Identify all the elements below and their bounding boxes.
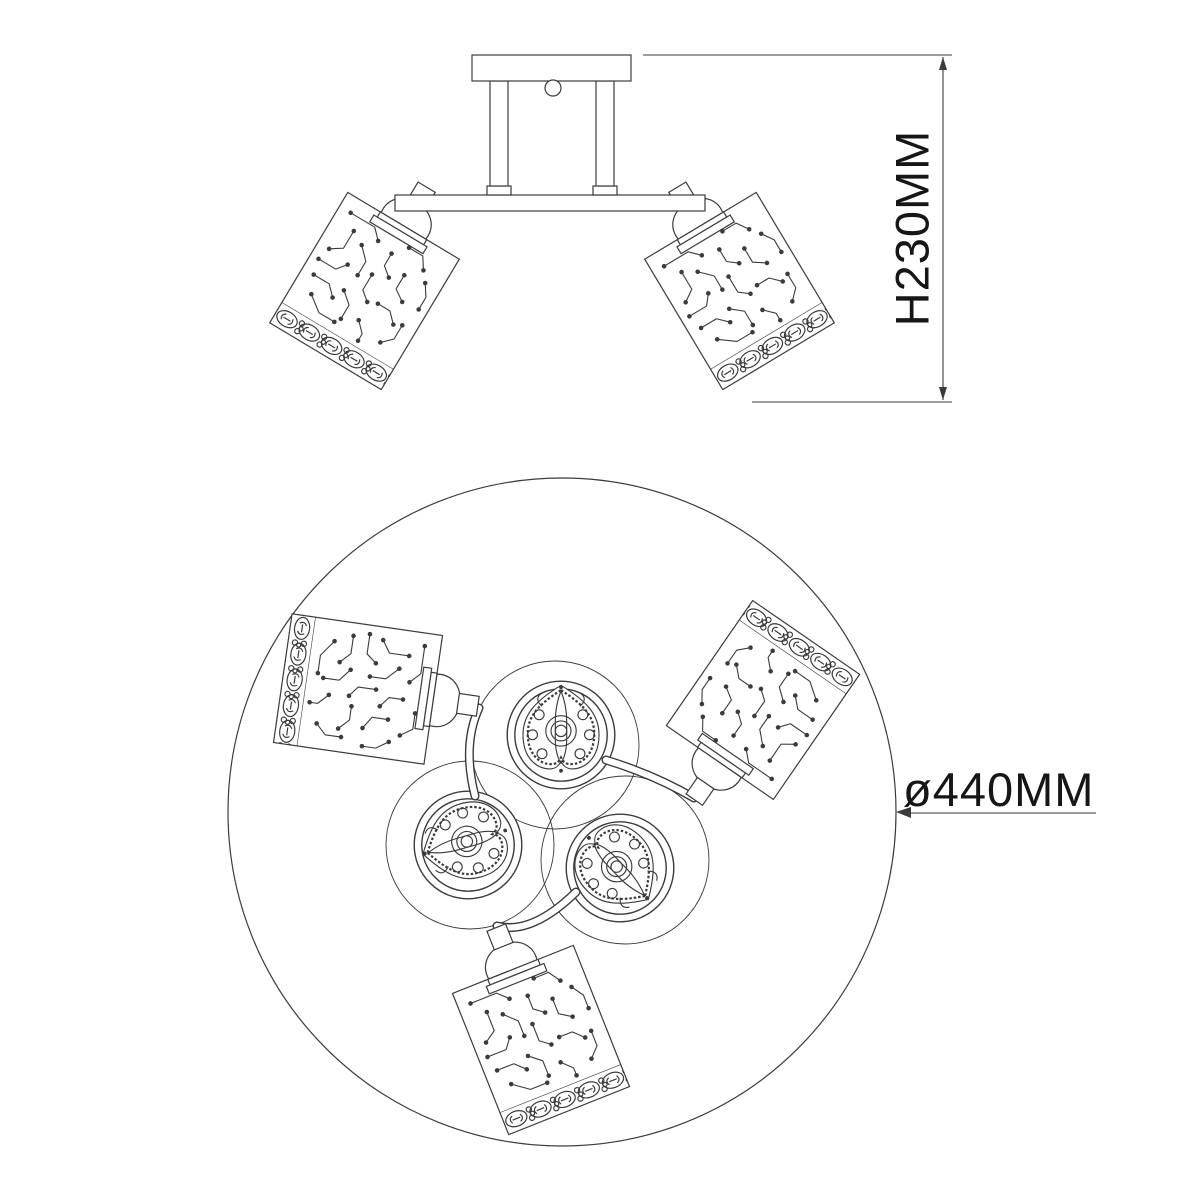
- drawing-sheet: H230MM: [0, 0, 1200, 1200]
- diameter-dimension-label: ø440MM: [903, 763, 1094, 816]
- lamp-shade: [622, 151, 840, 390]
- stem-foot-left: [487, 186, 511, 195]
- lamp-shade: [636, 597, 860, 836]
- lamp-shade: [273, 614, 487, 777]
- cable-knob: [545, 80, 561, 96]
- filigree-medallion: [523, 685, 599, 772]
- arrowhead-down-icon: [939, 387, 947, 400]
- arrowhead-up-icon: [939, 57, 947, 70]
- technical-drawing-canvas: H230MM: [0, 0, 1200, 1200]
- diameter-dimension: ø440MM: [896, 763, 1096, 818]
- lamp-shade: [270, 154, 488, 393]
- stem-foot-right: [593, 186, 617, 195]
- side-elevation-view: [270, 55, 840, 393]
- height-dimension-label: H230MM: [885, 130, 938, 327]
- ceiling-canopy: [472, 55, 631, 81]
- stem-right: [596, 81, 614, 186]
- stem-left: [490, 81, 508, 186]
- lamp-shade: [436, 901, 635, 1134]
- mounting-bar: [395, 195, 705, 211]
- plan-view: [228, 478, 896, 1146]
- filigree-medallion: [560, 810, 675, 926]
